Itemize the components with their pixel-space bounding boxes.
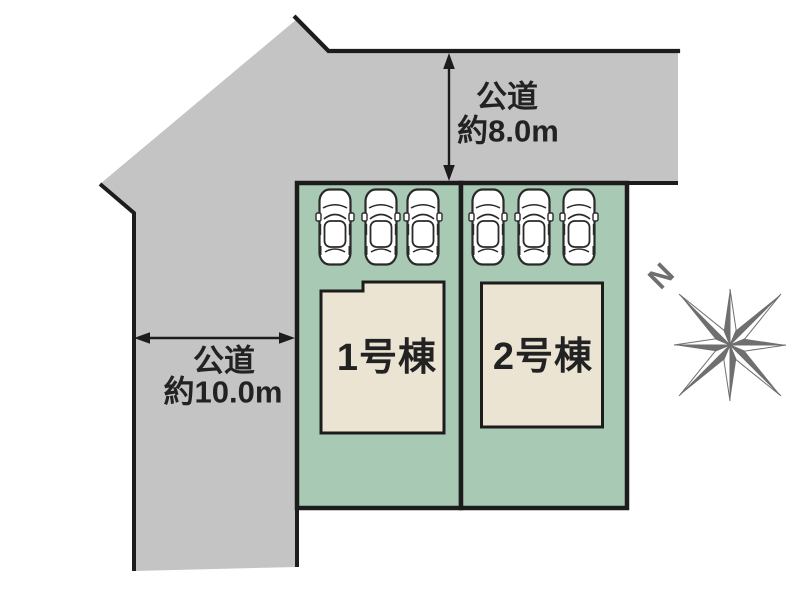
left-road-label-line1: 公道: [193, 344, 255, 379]
building-1-label: 1号棟: [337, 337, 437, 379]
car-icon: [316, 190, 354, 265]
car-icon: [362, 190, 400, 265]
road-border-left: [100, 184, 134, 571]
car-icon: [560, 190, 598, 265]
car-icon: [469, 190, 507, 265]
building-2-label: 2号棟: [493, 336, 593, 378]
top-road-label-line1: 公道: [476, 80, 538, 115]
car-icon: [404, 190, 442, 265]
plot-plan-canvas: 1号棟 2号棟 公道 約8.0m 公道 約10.0m: [0, 0, 800, 600]
plot-plan: 1号棟 2号棟 公道 約8.0m 公道 約10.0m: [0, 0, 800, 600]
road-border-top: [296, 18, 679, 52]
top-road-label-line2: 約8.0m: [457, 114, 559, 149]
left-road-label-line2: 約10.0m: [164, 375, 283, 410]
car-icon: [515, 190, 553, 265]
north-icon: N: [642, 257, 681, 296]
